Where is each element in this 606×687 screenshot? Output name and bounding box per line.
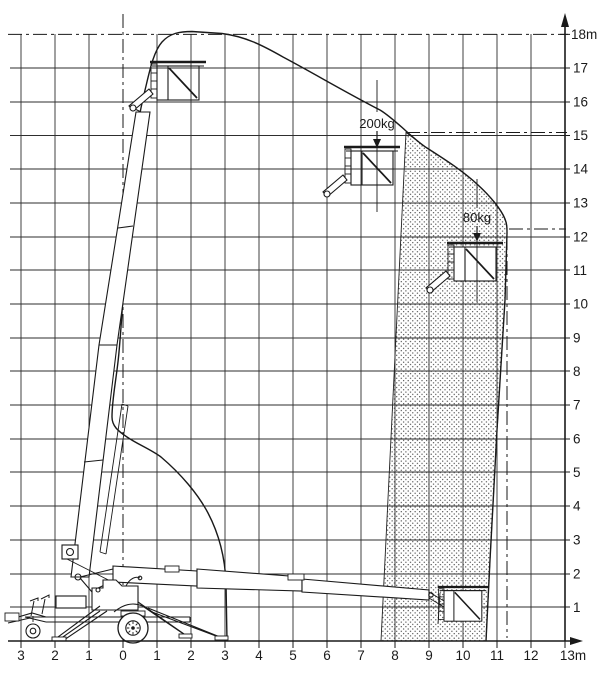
y-axis-arrow-icon bbox=[561, 13, 569, 27]
x-label: 2 bbox=[187, 648, 195, 663]
load-label-80kg: 80kg bbox=[463, 210, 491, 225]
y-label: 15 bbox=[573, 128, 588, 143]
restricted-zone-80kg bbox=[381, 133, 507, 642]
x-label: 1 bbox=[85, 648, 93, 663]
x-label: 1 bbox=[153, 648, 161, 663]
y-label: 14 bbox=[573, 162, 589, 177]
envelope-diagram: 200kg 80kg 3 2 1 0 1 2 3 4 5 6 7 8 9 10 … bbox=[0, 0, 606, 687]
y-label: 13 bbox=[573, 196, 588, 211]
x-label: 11 bbox=[490, 648, 504, 663]
y-label: 8 bbox=[573, 364, 581, 379]
y-label: 5 bbox=[573, 465, 581, 480]
y-label: 12 bbox=[573, 230, 588, 245]
y-label: 6 bbox=[573, 432, 581, 447]
jockey-wheel bbox=[26, 624, 40, 638]
load-label-200kg: 200kg bbox=[359, 116, 394, 131]
x-label: 4 bbox=[255, 648, 263, 663]
y-label: 18m bbox=[571, 27, 597, 42]
x-label: 3 bbox=[17, 648, 25, 663]
boom-raised bbox=[62, 108, 150, 590]
y-label: 11 bbox=[573, 263, 587, 278]
y-label: 4 bbox=[573, 499, 581, 514]
x-label: 5 bbox=[289, 648, 297, 663]
basket-200kg bbox=[323, 147, 400, 197]
y-label: 7 bbox=[573, 398, 581, 413]
x-label: 7 bbox=[357, 648, 365, 663]
diagram-canvas: 200kg 80kg 3 2 1 0 1 2 3 4 5 6 7 8 9 10 … bbox=[0, 0, 606, 687]
x-axis-labels: 3 2 1 0 1 2 3 4 5 6 7 8 9 10 11 12 13m bbox=[17, 648, 586, 663]
y-label: 3 bbox=[573, 533, 581, 548]
x-label: 6 bbox=[323, 648, 331, 663]
y-label: 17 bbox=[573, 61, 588, 76]
x-label: 0 bbox=[119, 648, 127, 663]
x-label: 9 bbox=[425, 648, 433, 663]
y-axis bbox=[560, 13, 570, 641]
x-label: 3 bbox=[221, 648, 229, 663]
y-label: 10 bbox=[573, 297, 588, 312]
x-label: 12 bbox=[523, 648, 538, 663]
x-axis-arrow-icon bbox=[570, 637, 583, 645]
y-label: 16 bbox=[573, 95, 588, 110]
y-label: 2 bbox=[573, 567, 581, 582]
y-label: 9 bbox=[573, 331, 581, 346]
x-label: 2 bbox=[51, 648, 59, 663]
wheel bbox=[118, 613, 148, 643]
basket-low bbox=[438, 587, 488, 624]
x-label: 13m bbox=[560, 648, 586, 663]
x-label: 8 bbox=[391, 648, 399, 663]
basket-top bbox=[129, 62, 206, 111]
y-label: 1 bbox=[573, 600, 581, 615]
y-axis-labels: 18m 17 16 15 14 13 12 11 10 9 8 7 6 5 4 … bbox=[571, 27, 597, 615]
x-axis-ticks bbox=[21, 641, 565, 648]
x-label: 10 bbox=[455, 648, 470, 663]
